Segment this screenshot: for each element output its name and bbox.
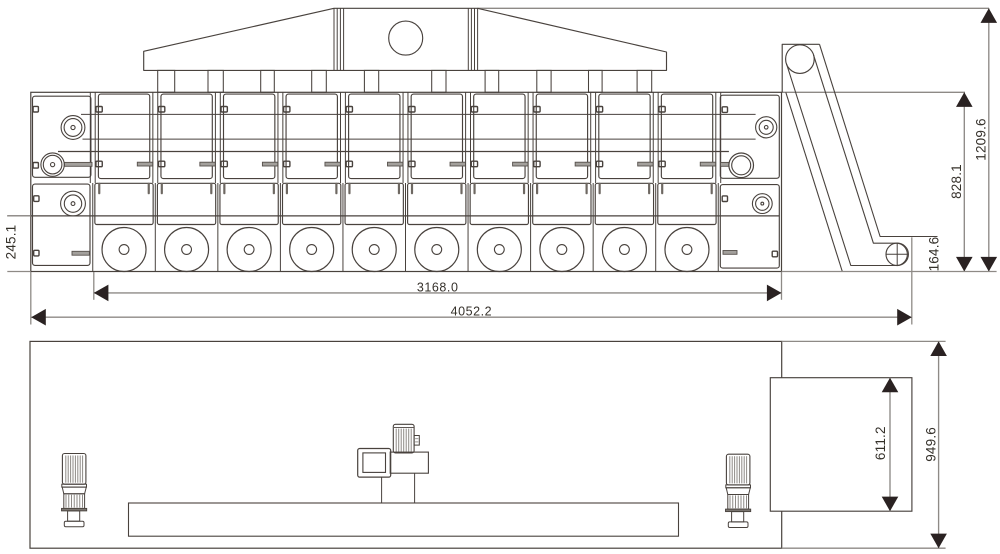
svg-text:245.1: 245.1 [4, 225, 19, 260]
svg-text:1209.6: 1209.6 [974, 118, 989, 161]
svg-text:828.1: 828.1 [949, 164, 964, 199]
svg-text:3168.0: 3168.0 [417, 280, 459, 294]
svg-text:164.6: 164.6 [926, 237, 941, 272]
svg-text:4052.2: 4052.2 [451, 304, 493, 318]
svg-text:949.6: 949.6 [924, 427, 939, 462]
svg-text:611.2: 611.2 [873, 426, 888, 460]
